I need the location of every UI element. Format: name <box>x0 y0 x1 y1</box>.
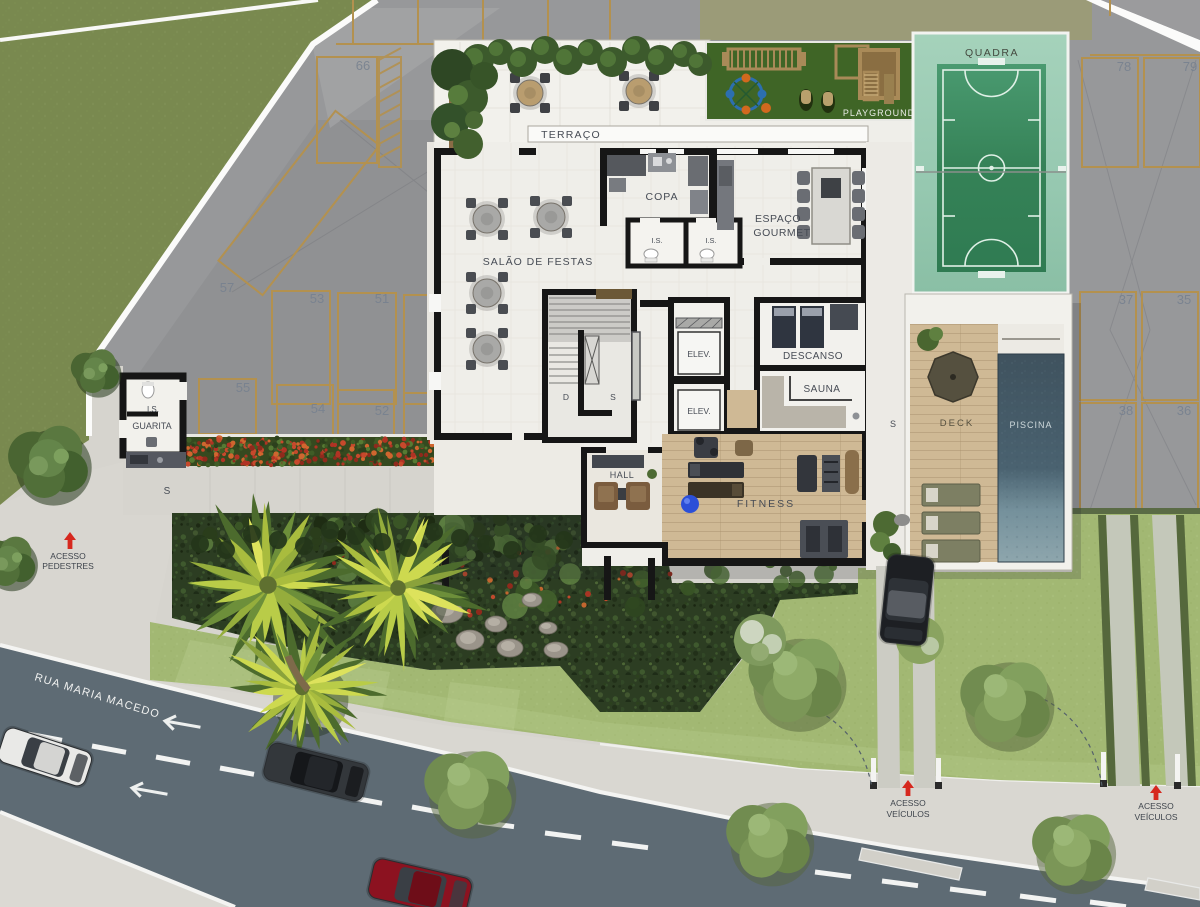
svg-text:36: 36 <box>1177 403 1191 418</box>
svg-text:ELEV.: ELEV. <box>687 406 710 416</box>
svg-text:VEÍCULOS: VEÍCULOS <box>1135 812 1178 822</box>
svg-text:ACESSO: ACESSO <box>890 798 926 808</box>
svg-text:38: 38 <box>1119 403 1133 418</box>
svg-text:PISCINA: PISCINA <box>1009 420 1052 430</box>
svg-text:78: 78 <box>1117 59 1131 74</box>
svg-text:ESPAÇO: ESPAÇO <box>755 213 801 225</box>
svg-text:ELEV.: ELEV. <box>687 349 710 359</box>
svg-text:I.S.: I.S. <box>651 236 662 245</box>
svg-text:S: S <box>890 419 896 429</box>
svg-text:TERRAÇO: TERRAÇO <box>541 129 601 141</box>
svg-text:55: 55 <box>236 380 250 395</box>
svg-text:I.S.: I.S. <box>705 236 716 245</box>
svg-text:VEÍCULOS: VEÍCULOS <box>887 809 930 819</box>
svg-text:SALÃO DE FESTAS: SALÃO DE FESTAS <box>483 255 594 268</box>
svg-text:FITNESS: FITNESS <box>737 498 795 510</box>
svg-text:SAUNA: SAUNA <box>804 384 841 395</box>
svg-text:51: 51 <box>375 291 389 306</box>
svg-text:52: 52 <box>375 403 389 418</box>
svg-text:GOURMET: GOURMET <box>753 227 810 239</box>
svg-text:COPA: COPA <box>646 191 679 203</box>
svg-text:66: 66 <box>356 58 370 73</box>
svg-text:79: 79 <box>1183 59 1197 74</box>
svg-text:ACESSO: ACESSO <box>50 551 86 561</box>
svg-text:S: S <box>164 486 171 497</box>
svg-text:37: 37 <box>1119 292 1133 307</box>
svg-text:I.S.: I.S. <box>147 405 159 414</box>
svg-text:PLAYGROUND: PLAYGROUND <box>843 108 915 118</box>
svg-text:PEDESTRES: PEDESTRES <box>42 561 94 571</box>
svg-text:GUARITA: GUARITA <box>132 421 171 431</box>
svg-text:54: 54 <box>311 401 325 416</box>
svg-text:ACESSO: ACESSO <box>1138 801 1174 811</box>
svg-text:57: 57 <box>220 280 234 295</box>
svg-text:HALL: HALL <box>610 470 635 480</box>
svg-text:S: S <box>610 392 616 402</box>
svg-text:DESCANSO: DESCANSO <box>783 351 843 362</box>
svg-text:53: 53 <box>310 291 324 306</box>
svg-text:D: D <box>563 392 569 402</box>
svg-text:QUADRA: QUADRA <box>965 47 1019 59</box>
svg-text:DECK: DECK <box>940 418 974 429</box>
svg-text:35: 35 <box>1177 292 1191 307</box>
